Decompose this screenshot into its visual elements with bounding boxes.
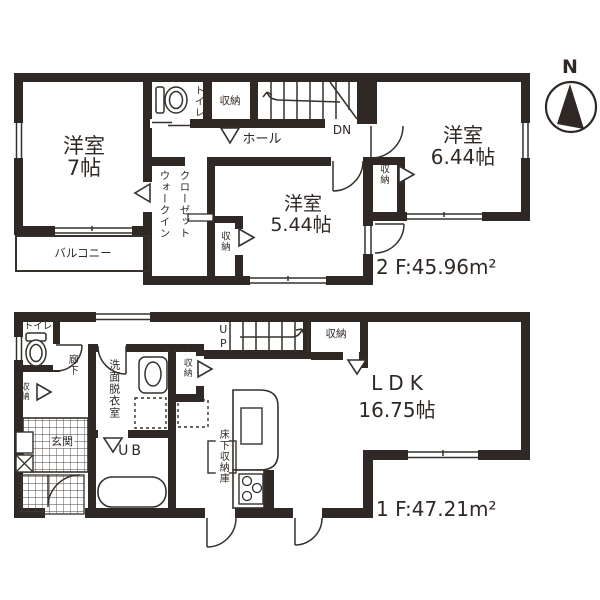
bath-label: UB <box>118 444 144 459</box>
room544-name: 洋室 <box>284 195 322 215</box>
floorplan: 洋室 7帖 トイレ 収納 ホール DN 洋室 6.44帖 収納 ウォークイン ク… <box>0 0 600 600</box>
hallway-label: 廊下 <box>66 354 77 376</box>
entrance-label: 玄関 <box>50 436 74 448</box>
underfloor-storage-label: 床下収納庫 <box>216 429 229 484</box>
stairs-2f-arrow <box>267 92 340 102</box>
stairs-1f-arrow <box>240 329 302 337</box>
room7-size: 7帖 <box>67 157 101 179</box>
balcony-label: バルコニー <box>54 247 111 259</box>
room644-name: 洋室 <box>443 125 483 146</box>
stairs-dn-label: DN <box>333 124 351 137</box>
wic-label-line2: クローゼット <box>178 170 189 239</box>
entrance-floor <box>16 418 88 514</box>
washbasin-icon <box>139 357 167 393</box>
storage-small-2f-label: 収納 <box>219 231 229 252</box>
toilet-1f-label: トイレ <box>24 322 53 332</box>
refrigerator-space <box>178 400 208 427</box>
storage-2f-top-label: 収納 <box>220 96 241 107</box>
stairs-up-label: UP <box>217 323 229 351</box>
storage-left-1f-label: 収納 <box>20 382 29 401</box>
storage-wash-label: 収納 <box>181 358 190 378</box>
wic-shelf <box>188 214 213 221</box>
bathtub-icon <box>98 477 166 507</box>
floor2-area-label: 2 F:45.96m² <box>376 257 497 278</box>
room7-name: 洋室 <box>63 135 105 157</box>
north-label: N <box>562 58 578 78</box>
hall-label: ホール <box>242 133 281 147</box>
north-arrow-icon <box>546 82 596 132</box>
ldk-size: 16.75帖 <box>358 400 435 421</box>
floor1-area-label: 1 F:47.21m² <box>376 499 497 520</box>
washer-space <box>135 398 166 428</box>
stairs-2f <box>263 82 357 119</box>
washroom-label: 洗面脱衣室 <box>108 359 120 419</box>
room544-size: 5.44帖 <box>270 216 331 236</box>
sink-icon <box>241 408 262 444</box>
toilet-1f-icon <box>26 333 46 366</box>
storage-stairs-label: 収納 <box>326 329 347 340</box>
toilet-2f-icon <box>156 87 187 113</box>
floorplan-drawing <box>0 0 600 600</box>
toilet-2f-label: トイレ <box>192 85 203 118</box>
ldk-name: LDK <box>371 373 429 394</box>
storage-644-label: 収納 <box>378 164 388 185</box>
wic-label-line1: ウォークイン <box>158 170 169 239</box>
room644-size: 6.44帖 <box>431 147 496 168</box>
